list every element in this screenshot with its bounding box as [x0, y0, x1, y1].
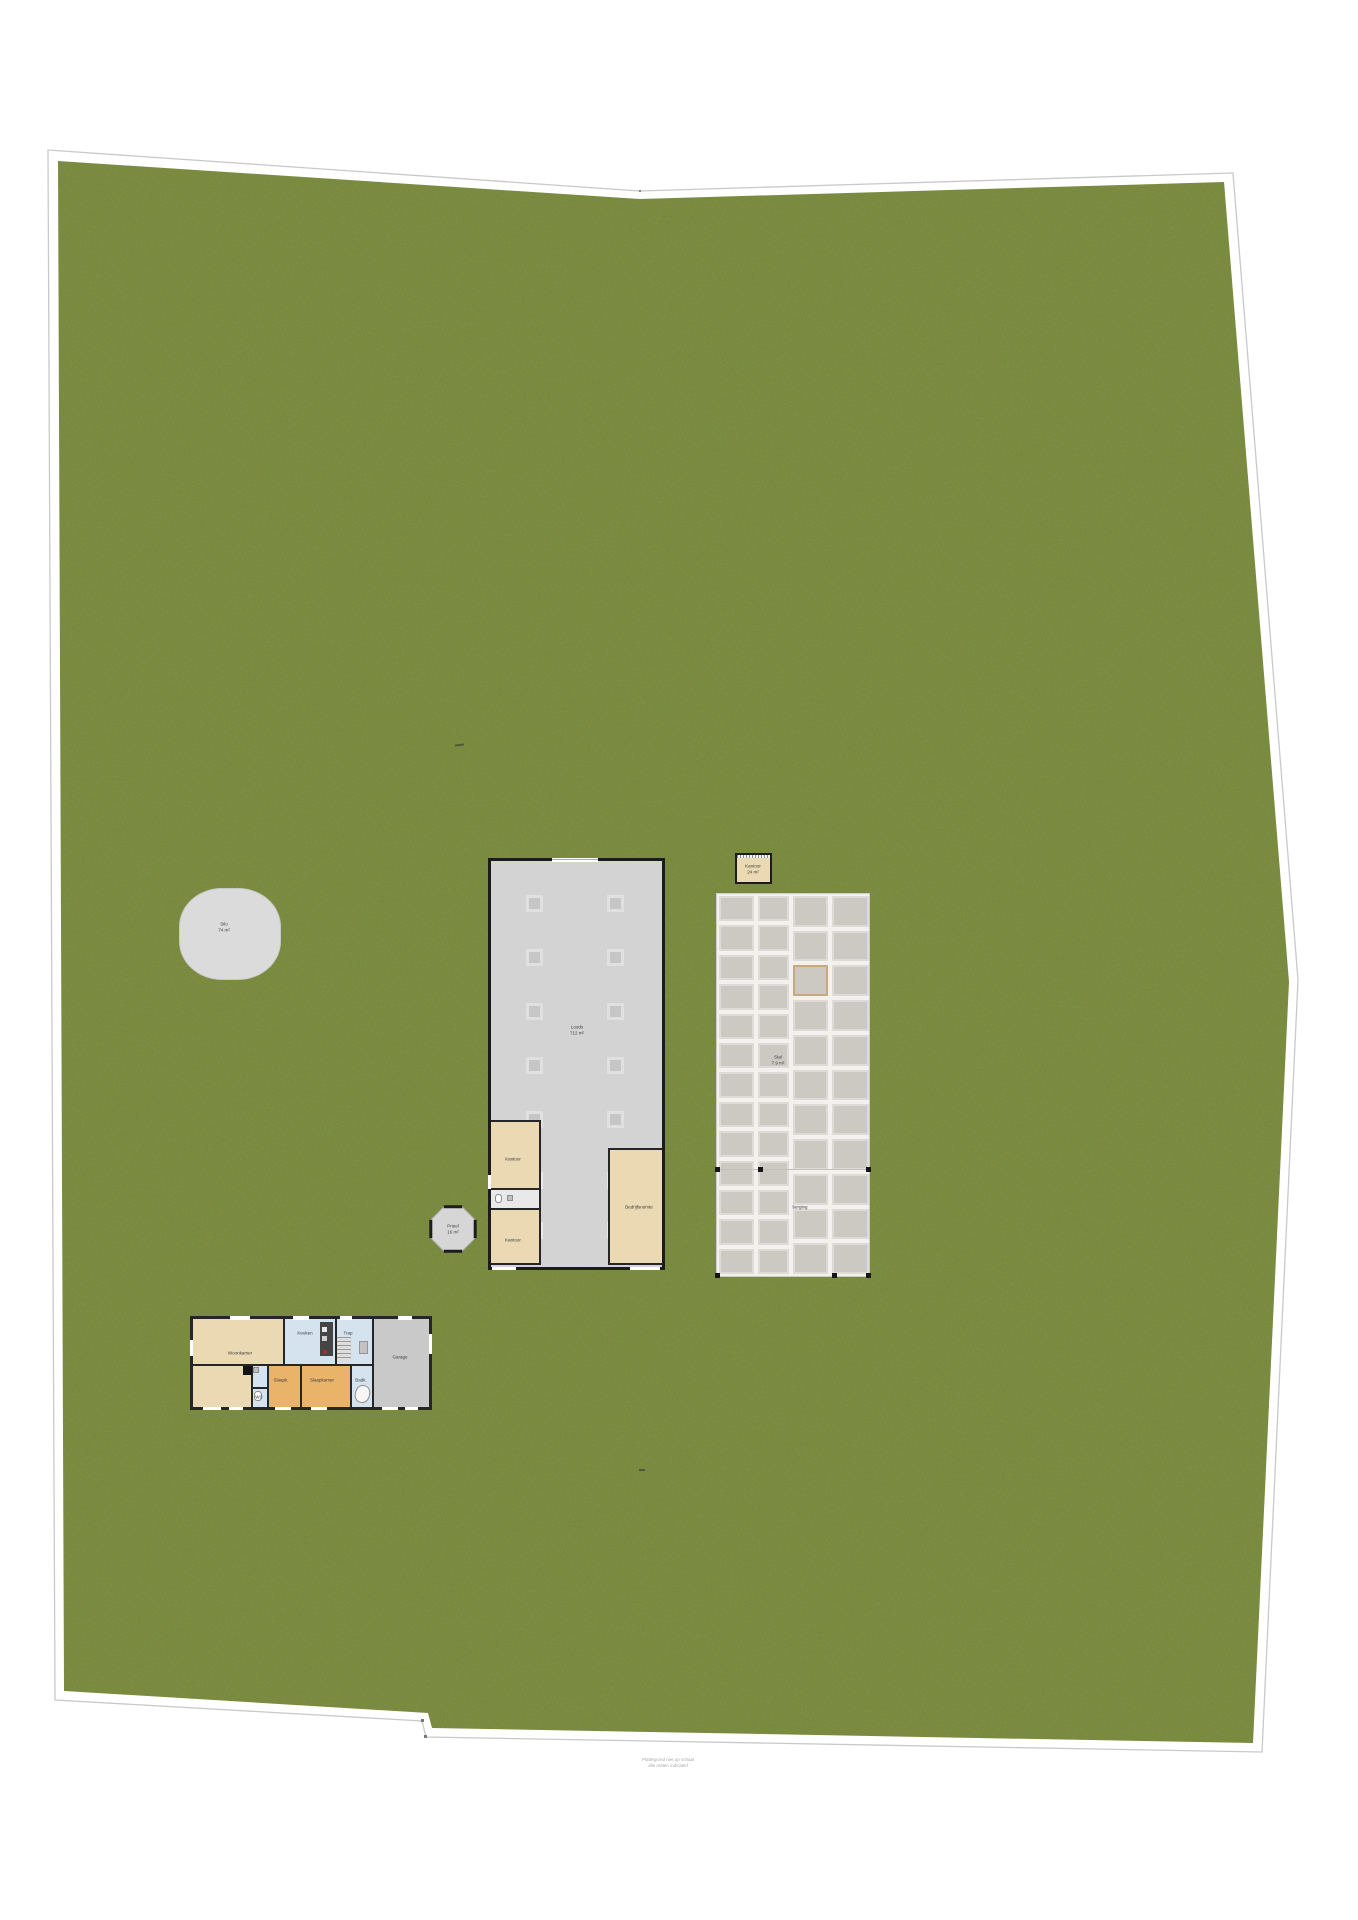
stall-cell[interactable] [719, 1219, 754, 1244]
support-pillar [526, 1057, 543, 1074]
sink-icon [322, 1327, 327, 1332]
stall-cell[interactable] [758, 1072, 789, 1097]
stall-cell[interactable] [758, 1014, 789, 1039]
stall-cell[interactable] [832, 965, 869, 996]
stall-cell[interactable] [719, 896, 754, 921]
stall-cell[interactable] [832, 896, 869, 927]
interior-wall [251, 1387, 267, 1389]
fireplace-icon [243, 1366, 252, 1375]
stall-cell[interactable] [793, 896, 828, 927]
stall-cell[interactable] [793, 1104, 828, 1135]
site-plan-canvas: Silo 74 m² Loods 712 m² [0, 0, 1358, 1920]
garage-door-gap [405, 1407, 418, 1410]
stable-column [832, 896, 869, 1274]
stall-cell[interactable] [832, 1209, 869, 1240]
toilet-icon [254, 1391, 262, 1401]
stall-cell[interactable] [719, 1131, 754, 1156]
stall-cell[interactable] [758, 1190, 789, 1215]
gazebo-building[interactable] [431, 1207, 475, 1251]
window [203, 1407, 221, 1410]
stall-cell[interactable] [719, 984, 754, 1009]
stall-cell[interactable] [793, 965, 828, 996]
support-pillar [607, 949, 624, 966]
selection-handle[interactable] [715, 1273, 720, 1278]
support-pillar [526, 895, 543, 912]
interior-wall [283, 1319, 285, 1364]
interior-wall [193, 1364, 374, 1366]
cabinet-icon [359, 1341, 368, 1354]
living-room[interactable] [193, 1319, 283, 1364]
stall-cell[interactable] [793, 1139, 828, 1170]
boundary-vertex-dot [639, 190, 641, 192]
plan-caption: Plattegrond niet op schaal alle maten in… [600, 1757, 736, 1769]
stall-cell[interactable] [793, 1035, 828, 1066]
boundary-vertex-dot [421, 1719, 424, 1722]
stall-cell[interactable] [758, 1131, 789, 1156]
barn-door-line [552, 859, 598, 860]
support-pillar [607, 1003, 624, 1020]
sink-icon [507, 1195, 513, 1201]
stable-divider-line [716, 1169, 870, 1170]
barn-building[interactable] [488, 858, 665, 1270]
selection-handle[interactable] [866, 1273, 871, 1278]
window-hatch-icon [737, 855, 770, 858]
barn-office-room-2[interactable] [491, 1208, 541, 1265]
stall-cell[interactable] [719, 1249, 754, 1274]
interior-wall [372, 1319, 374, 1407]
stall-cell[interactable] [832, 1243, 869, 1274]
stall-cell[interactable] [719, 1161, 754, 1186]
stall-cell[interactable] [793, 1070, 828, 1101]
stable-column [719, 896, 754, 1274]
support-pillar [607, 1111, 624, 1128]
window [429, 1334, 432, 1354]
bedroom-2[interactable] [300, 1364, 350, 1407]
stall-cell[interactable] [719, 955, 754, 980]
stall-cell[interactable] [793, 1174, 828, 1205]
selection-handle[interactable] [758, 1167, 763, 1172]
garage-door-gap [382, 1407, 398, 1410]
stairs-icon [337, 1337, 351, 1361]
caption-line-2: alle maten indicatief [600, 1763, 736, 1769]
terrain-mark [639, 1469, 645, 1471]
barn-door-gap [630, 1267, 660, 1270]
stall-cell[interactable] [832, 1070, 869, 1101]
stall-cell[interactable] [793, 1243, 828, 1274]
window [229, 1407, 243, 1410]
window [230, 1316, 250, 1320]
stall-cell[interactable] [758, 896, 789, 921]
stall-cell[interactable] [832, 1104, 869, 1135]
barn-workshop-room[interactable] [608, 1148, 662, 1265]
stall-cell[interactable] [719, 1014, 754, 1039]
window [275, 1407, 291, 1410]
sink-icon [253, 1367, 259, 1373]
stall-cell[interactable] [719, 1102, 754, 1127]
stall-cell[interactable] [793, 931, 828, 962]
stall-cell[interactable] [758, 1249, 789, 1274]
window [190, 1340, 193, 1356]
support-pillar [607, 1057, 624, 1074]
stable-building[interactable] [716, 893, 870, 1277]
stall-cell[interactable] [758, 1219, 789, 1244]
stall-cell[interactable] [832, 1035, 869, 1066]
window [340, 1316, 352, 1320]
stall-cell[interactable] [719, 1072, 754, 1097]
support-pillar [607, 895, 624, 912]
interior-wall [350, 1364, 352, 1407]
stall-cell[interactable] [719, 1190, 754, 1215]
stall-cell[interactable] [793, 1209, 828, 1240]
house-building[interactable]: Woonkamer Keuken Trap Garage Slaapk. Sla… [190, 1316, 432, 1410]
stable-column [758, 896, 789, 1274]
window [398, 1316, 412, 1320]
plant-icon [323, 1350, 327, 1354]
stall-cell[interactable] [832, 1139, 869, 1170]
office-building[interactable] [735, 853, 772, 884]
support-pillar [526, 1003, 543, 1020]
toilet-icon [495, 1194, 502, 1203]
interior-wall [300, 1364, 302, 1407]
barn-office-room-1[interactable] [491, 1120, 541, 1190]
stall-cell[interactable] [758, 984, 789, 1009]
window [311, 1407, 327, 1410]
stall-cell[interactable] [719, 925, 754, 950]
selection-handle[interactable] [866, 1167, 871, 1172]
selection-handle[interactable] [715, 1167, 720, 1172]
stall-cell[interactable] [758, 1102, 789, 1127]
stall-cell[interactable] [758, 1043, 789, 1068]
stable-column [793, 896, 828, 1274]
stall-cell[interactable] [758, 955, 789, 980]
support-pillar [526, 949, 543, 966]
stall-cell[interactable] [719, 1043, 754, 1068]
stall-cell[interactable] [832, 1174, 869, 1205]
stall-cell[interactable] [832, 1000, 869, 1031]
bedroom-1[interactable] [267, 1364, 300, 1407]
barn-door-gap [492, 1267, 516, 1270]
stall-cell[interactable] [793, 1000, 828, 1031]
garage-room[interactable] [372, 1319, 429, 1407]
stall-cell[interactable] [758, 925, 789, 950]
interior-wall [267, 1364, 269, 1407]
stove-icon [322, 1336, 327, 1341]
silo-building[interactable] [179, 888, 281, 980]
selection-handle[interactable] [832, 1273, 837, 1278]
boundary-vertex-dot [424, 1735, 427, 1738]
stall-cell[interactable] [832, 931, 869, 962]
stall-cell[interactable] [758, 1161, 789, 1186]
window [293, 1316, 309, 1320]
barn-window [488, 1175, 491, 1189]
